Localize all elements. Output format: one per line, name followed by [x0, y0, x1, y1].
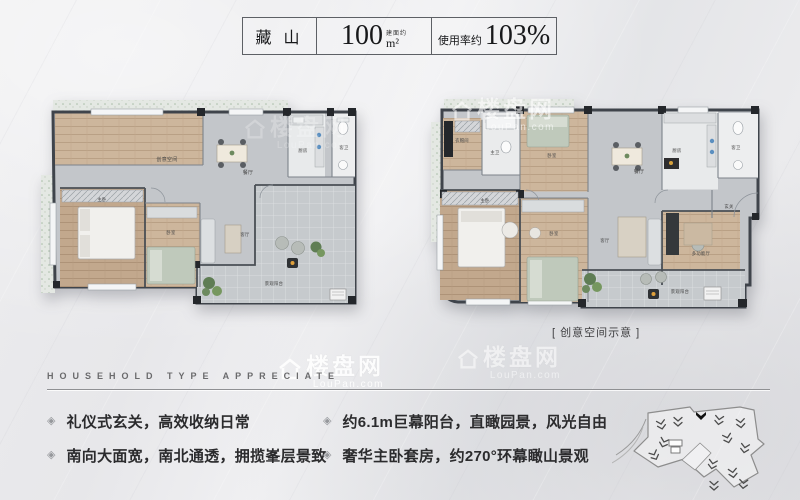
feature-text: 南向大面宽，南北通透，拥揽峯层景致	[66, 445, 326, 466]
site-plan-map	[612, 397, 782, 495]
room-label-bedroom-2: 卧室	[549, 230, 559, 237]
watermark-house-icon	[456, 346, 480, 372]
title-bar: 藏 山 100 建面约 m² 使用率约 103%	[242, 17, 557, 55]
room-label-balcony: 景观阳台	[265, 280, 283, 287]
feature-item: ◈ 礼仪式玄关，高效收纳日常	[47, 411, 347, 432]
room-label-living: 客厅	[240, 231, 250, 238]
room-label-master: 主卧	[97, 196, 107, 203]
diamond-bullet-icon: ◈	[47, 448, 55, 461]
floorplan-left: 创意空间 餐厅 厨房 客卫 主卧 卧室 客厅 景观阳台	[33, 95, 357, 310]
floorplan-right: 衣帽间 主卫 卧室 餐厅 厨房 客卫 玄关 主卧 卧室 客厅 多功能厅 景观阳台	[428, 95, 764, 310]
room-label-closet: 衣帽间	[455, 137, 469, 144]
room-label-master: 主卧	[480, 197, 490, 204]
diamond-bullet-icon: ◈	[323, 414, 331, 427]
project-name: 藏 山	[243, 18, 317, 54]
usage-value: 103%	[485, 22, 550, 50]
room-label-guest-bath: 客卫	[731, 144, 741, 151]
site-roads	[612, 419, 646, 463]
watermark: 楼盘网LouPan.com	[456, 346, 561, 381]
room-label-kitchen: 厨房	[298, 147, 307, 154]
room-creative-space	[55, 114, 203, 166]
area-unit-stack: 建面约 m²	[386, 28, 407, 49]
room-label-creative-space: 创意空间	[156, 156, 177, 163]
room-label-living: 客厅	[600, 237, 610, 244]
usage-cell: 使用率约 103%	[432, 18, 556, 54]
feature-text: 奢华主卧套房，约270°环幕瞰山景观	[342, 445, 588, 466]
room-label-dining: 餐厅	[634, 168, 645, 175]
room-label-bedroom: 卧室	[166, 229, 176, 236]
room-label-bedroom-top: 卧室	[547, 152, 557, 159]
diamond-bullet-icon: ◈	[47, 414, 55, 427]
room-label-balcony: 景观阳台	[671, 288, 689, 295]
section-title: HOUSEHOLD TYPE APPRECIATE	[47, 371, 340, 381]
feature-item: ◈ 南向大面宽，南北通透，拥揽峯层景致	[47, 445, 347, 466]
room-label-multifunction: 多功能厅	[692, 250, 711, 257]
area-unit: m²	[386, 37, 399, 49]
room-label-guest-bath: 客卫	[339, 144, 349, 151]
feature-text: 约6.1m巨幕阳台，直瞰园景，风光自由	[342, 411, 607, 432]
feature-text: 礼仪式玄关，高效收纳日常	[66, 411, 250, 432]
divider-line	[47, 389, 770, 390]
page: 藏 山 100 建面约 m² 使用率约 103%	[0, 0, 800, 500]
room-label-foyer: 玄关	[724, 203, 734, 210]
diamond-bullet-icon: ◈	[323, 448, 331, 461]
feature-item: ◈ 奢华主卧套房，约270°环幕瞰山景观	[323, 445, 623, 466]
room-label-kitchen: 厨房	[672, 147, 681, 154]
room-label-dining: 餐厅	[243, 169, 254, 176]
usage-prefix: 使用率约	[438, 32, 482, 48]
area-value: 100	[341, 22, 383, 50]
feature-item: ◈ 约6.1m巨幕阳台，直瞰园景，风光自由	[323, 411, 623, 432]
plan-caption: [ 创意空间示意 ]	[552, 324, 640, 340]
room-label-master-bath: 主卫	[490, 149, 500, 155]
area-cell: 100 建面约 m²	[317, 18, 432, 54]
